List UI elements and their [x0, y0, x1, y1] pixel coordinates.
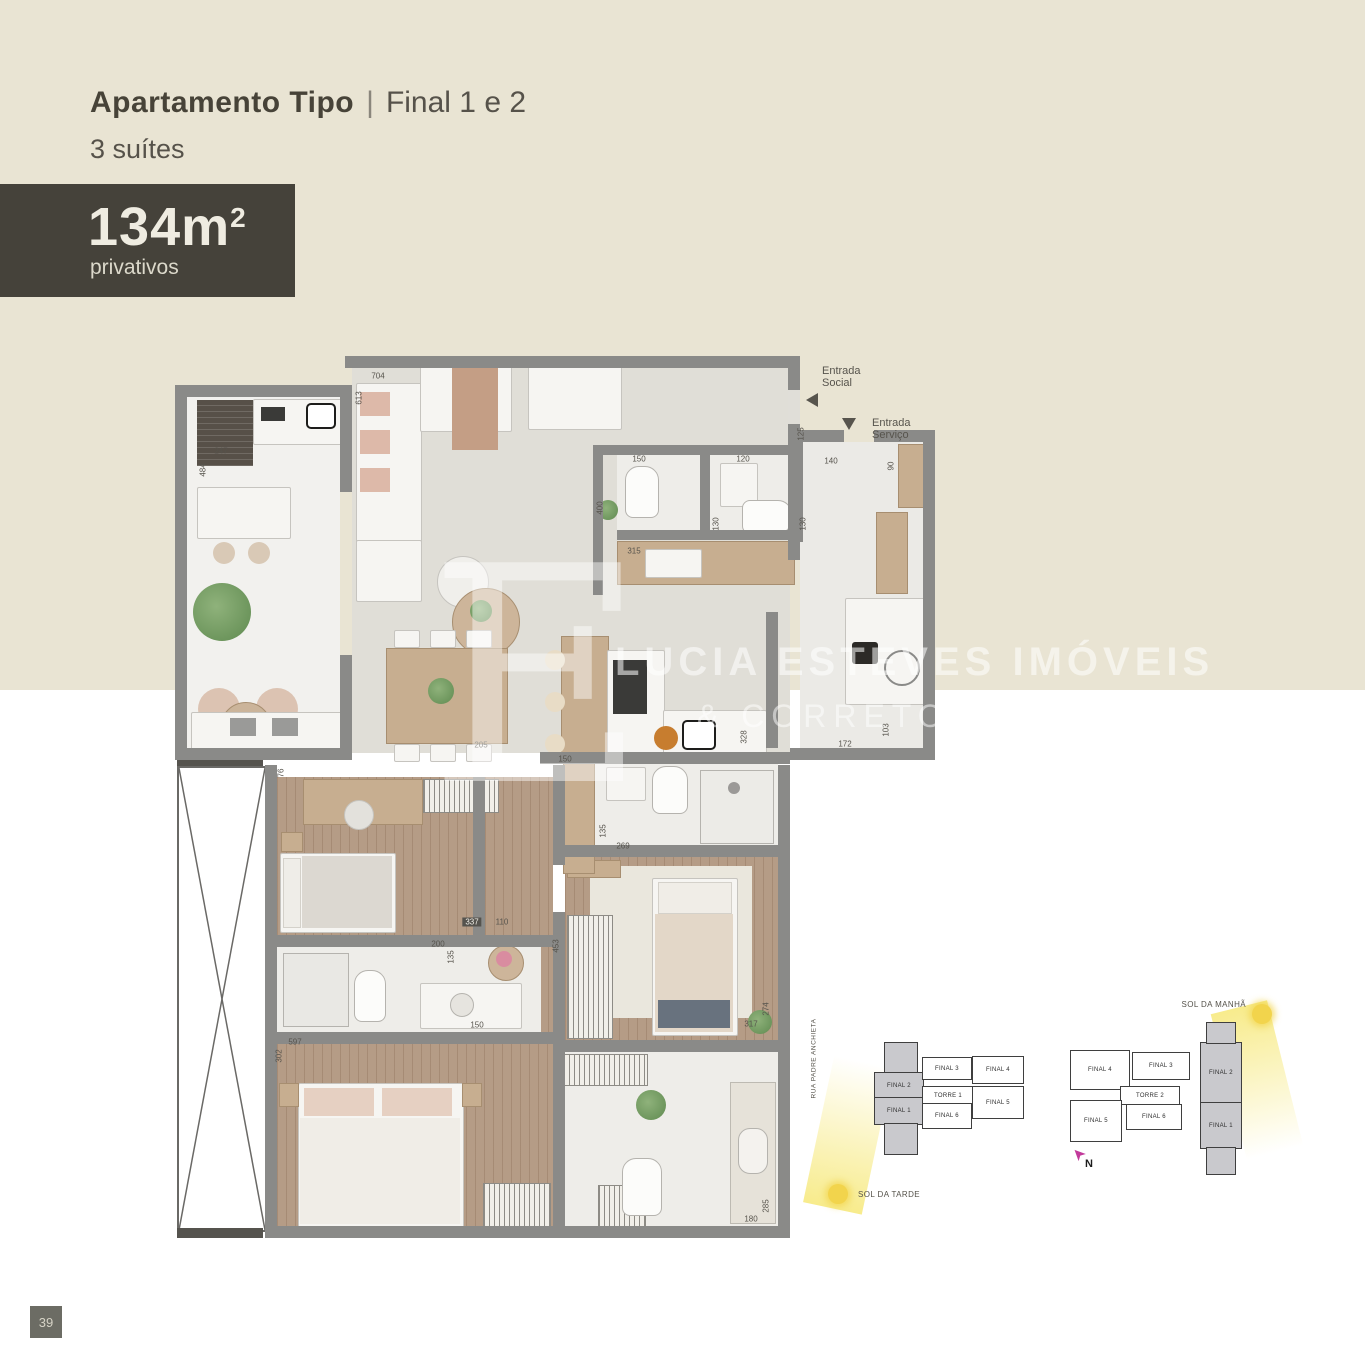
dim-label: 704: [371, 372, 384, 381]
wall-segment: [175, 385, 187, 760]
dim-label: 172: [838, 740, 851, 749]
dim-label: 317: [744, 1020, 757, 1029]
wall-segment: [345, 356, 800, 368]
tower-cell: TORRE 2: [1120, 1086, 1180, 1105]
wall-segment: [340, 397, 352, 492]
desk-chair: [344, 800, 374, 830]
sun-morning-label: SOL DA MANHÃ: [1146, 1000, 1246, 1009]
tower-cell: FINAL 2: [874, 1072, 924, 1099]
title-separator: |: [366, 86, 374, 120]
wall-segment: [553, 912, 565, 1238]
common-area-shaft: [177, 766, 267, 1232]
tower-cell-stub: [884, 1123, 918, 1155]
plant: [193, 583, 251, 641]
toilet: [354, 970, 386, 1022]
wall-segment: [553, 1040, 790, 1052]
entry-social-label: Entrada Social: [822, 366, 861, 390]
dim-label: 453: [552, 939, 561, 952]
tower-cell: FINAL 4: [1070, 1050, 1130, 1090]
wall-segment: [800, 430, 844, 442]
entry-social-arrow-icon: [806, 393, 818, 407]
bed-pillow: [304, 1088, 374, 1116]
dim-label: 130: [712, 517, 721, 530]
dim-label: 150: [632, 455, 645, 464]
tower-cell: FINAL 5: [1070, 1100, 1122, 1142]
wall-segment: [700, 452, 710, 540]
pan: [654, 726, 678, 750]
subtitle-suites: 3 suítes: [90, 134, 185, 165]
dim-label: 125: [797, 427, 806, 440]
pillow: [360, 468, 390, 492]
closet: [567, 915, 613, 1039]
wall-segment: [177, 1228, 263, 1238]
dim-label: 150: [470, 1021, 483, 1030]
area-superscript: 2: [230, 202, 247, 233]
shower: [700, 770, 774, 844]
nightstand: [281, 832, 303, 852]
service-cabinet: [898, 444, 925, 508]
dim-label: 597: [288, 1038, 301, 1047]
tower-cell: FINAL 1: [874, 1097, 924, 1125]
wall-segment: [593, 445, 803, 455]
tower-cell: FINAL 3: [922, 1057, 972, 1080]
wall-segment: [277, 1032, 553, 1044]
tower-cell: FINAL 2: [1200, 1042, 1242, 1104]
dim-label: 120: [736, 455, 749, 464]
tower-cell: FINAL 1: [1200, 1102, 1242, 1149]
tower-cell: FINAL 4: [972, 1056, 1024, 1084]
sun-icon: [828, 1184, 848, 1204]
north-label: N: [1085, 1158, 1093, 1170]
sofa-chaise: [356, 540, 422, 602]
wall-segment: [790, 748, 935, 760]
wall-segment: [265, 765, 277, 1238]
wall-segment: [175, 385, 352, 397]
pillow: [272, 718, 298, 736]
dim-label: 180: [744, 1215, 757, 1224]
stool: [248, 542, 270, 564]
nightstand: [279, 1083, 299, 1107]
dim-label: 200: [431, 940, 444, 949]
dim-label: 337: [462, 918, 481, 927]
door-gap-social: [788, 390, 800, 424]
dim-label: 484: [199, 463, 208, 476]
wall-segment: [778, 765, 790, 1238]
dim-label: 90: [887, 462, 896, 471]
title-unit-finals: Final 1 e 2: [386, 86, 526, 120]
vanity-sink: [450, 993, 474, 1017]
tower-cell: FINAL 6: [1126, 1104, 1182, 1130]
dim-label: 76: [277, 769, 286, 778]
pillow: [360, 392, 390, 416]
shower: [283, 953, 349, 1027]
service-cabinet: [876, 512, 908, 594]
tower-cell: FINAL 5: [972, 1086, 1024, 1119]
stool: [213, 542, 235, 564]
dim-label: 613: [355, 391, 364, 404]
balcony-island: [197, 487, 291, 539]
wall-segment: [265, 1226, 790, 1238]
wardrobe: [483, 1183, 551, 1228]
pillow: [360, 430, 390, 454]
area-caption: privativos: [90, 256, 179, 280]
brochure-page: Apartamento Tipo | Final 1 e 2 3 suítes …: [0, 0, 1365, 1366]
dining-chair: [394, 630, 420, 648]
area-badge: 134m2 privativos: [0, 184, 295, 297]
dim-label: 110: [496, 918, 509, 927]
wall-segment: [340, 655, 352, 760]
throw-blanket: [452, 366, 498, 450]
dim-label: 302: [275, 1049, 284, 1062]
toilet: [652, 766, 688, 814]
closet: [558, 1054, 648, 1086]
bed-throw: [658, 1000, 730, 1028]
bed-pillow: [658, 882, 732, 914]
balcony-sink: [306, 403, 336, 429]
area-value: 134m2: [88, 196, 247, 258]
tower-cell-stub: [1206, 1147, 1236, 1175]
bed-duvet: [300, 1118, 460, 1224]
entry-servico-label: Entrada Serviço: [872, 418, 911, 442]
shower-drain: [728, 782, 740, 794]
daybed: [528, 366, 622, 430]
wall-segment: [175, 748, 352, 760]
tower-cell: FINAL 3: [1132, 1052, 1190, 1080]
dim-label: 130: [799, 517, 808, 530]
vanity-sink: [738, 1128, 768, 1174]
dim-label: 285: [762, 1199, 771, 1212]
nightstand: [462, 1083, 482, 1107]
watermark-company-sub: & CORRETORES ASSOC.: [697, 698, 1214, 735]
street-label: RUA PADRE ANCHIETA: [811, 1009, 818, 1109]
cooktop: [261, 407, 285, 421]
dining-chair: [394, 744, 420, 762]
grill: [197, 400, 253, 466]
wall-segment: [277, 935, 553, 947]
pillow: [230, 718, 256, 736]
vanity-basin: [645, 549, 702, 578]
dim-label: 247: [214, 447, 227, 456]
wall-segment: [788, 434, 800, 560]
bed-pillow: [283, 858, 301, 928]
tower-cell: FINAL 6: [922, 1103, 972, 1129]
page-title: Apartamento Tipo | Final 1 e 2: [90, 86, 526, 120]
page-number: 39: [30, 1306, 62, 1338]
watermark-company-name: LUCIA ESTEVES IMÓVEIS: [615, 640, 1214, 685]
bench-sofa: [191, 712, 343, 752]
sun-afternoon-label: SOL DA TARDE: [858, 1190, 920, 1199]
toilet: [622, 1158, 662, 1216]
dim-label: 135: [447, 950, 456, 963]
bed-duvet: [302, 856, 392, 928]
flowers: [496, 951, 512, 967]
entry-servico-arrow-icon: [842, 418, 856, 430]
dim-label: 274: [762, 1002, 771, 1015]
sun-icon: [1252, 1004, 1272, 1024]
title-apartment-type: Apartamento Tipo: [90, 86, 354, 120]
dim-label: 140: [824, 457, 837, 466]
plant: [636, 1090, 666, 1120]
shaft-x-hatch: [179, 768, 265, 1230]
toilet: [742, 500, 792, 534]
tower-cell-stub: [884, 1042, 918, 1074]
bed-pillow: [382, 1088, 452, 1116]
tower-cell-stub: [1206, 1022, 1236, 1044]
